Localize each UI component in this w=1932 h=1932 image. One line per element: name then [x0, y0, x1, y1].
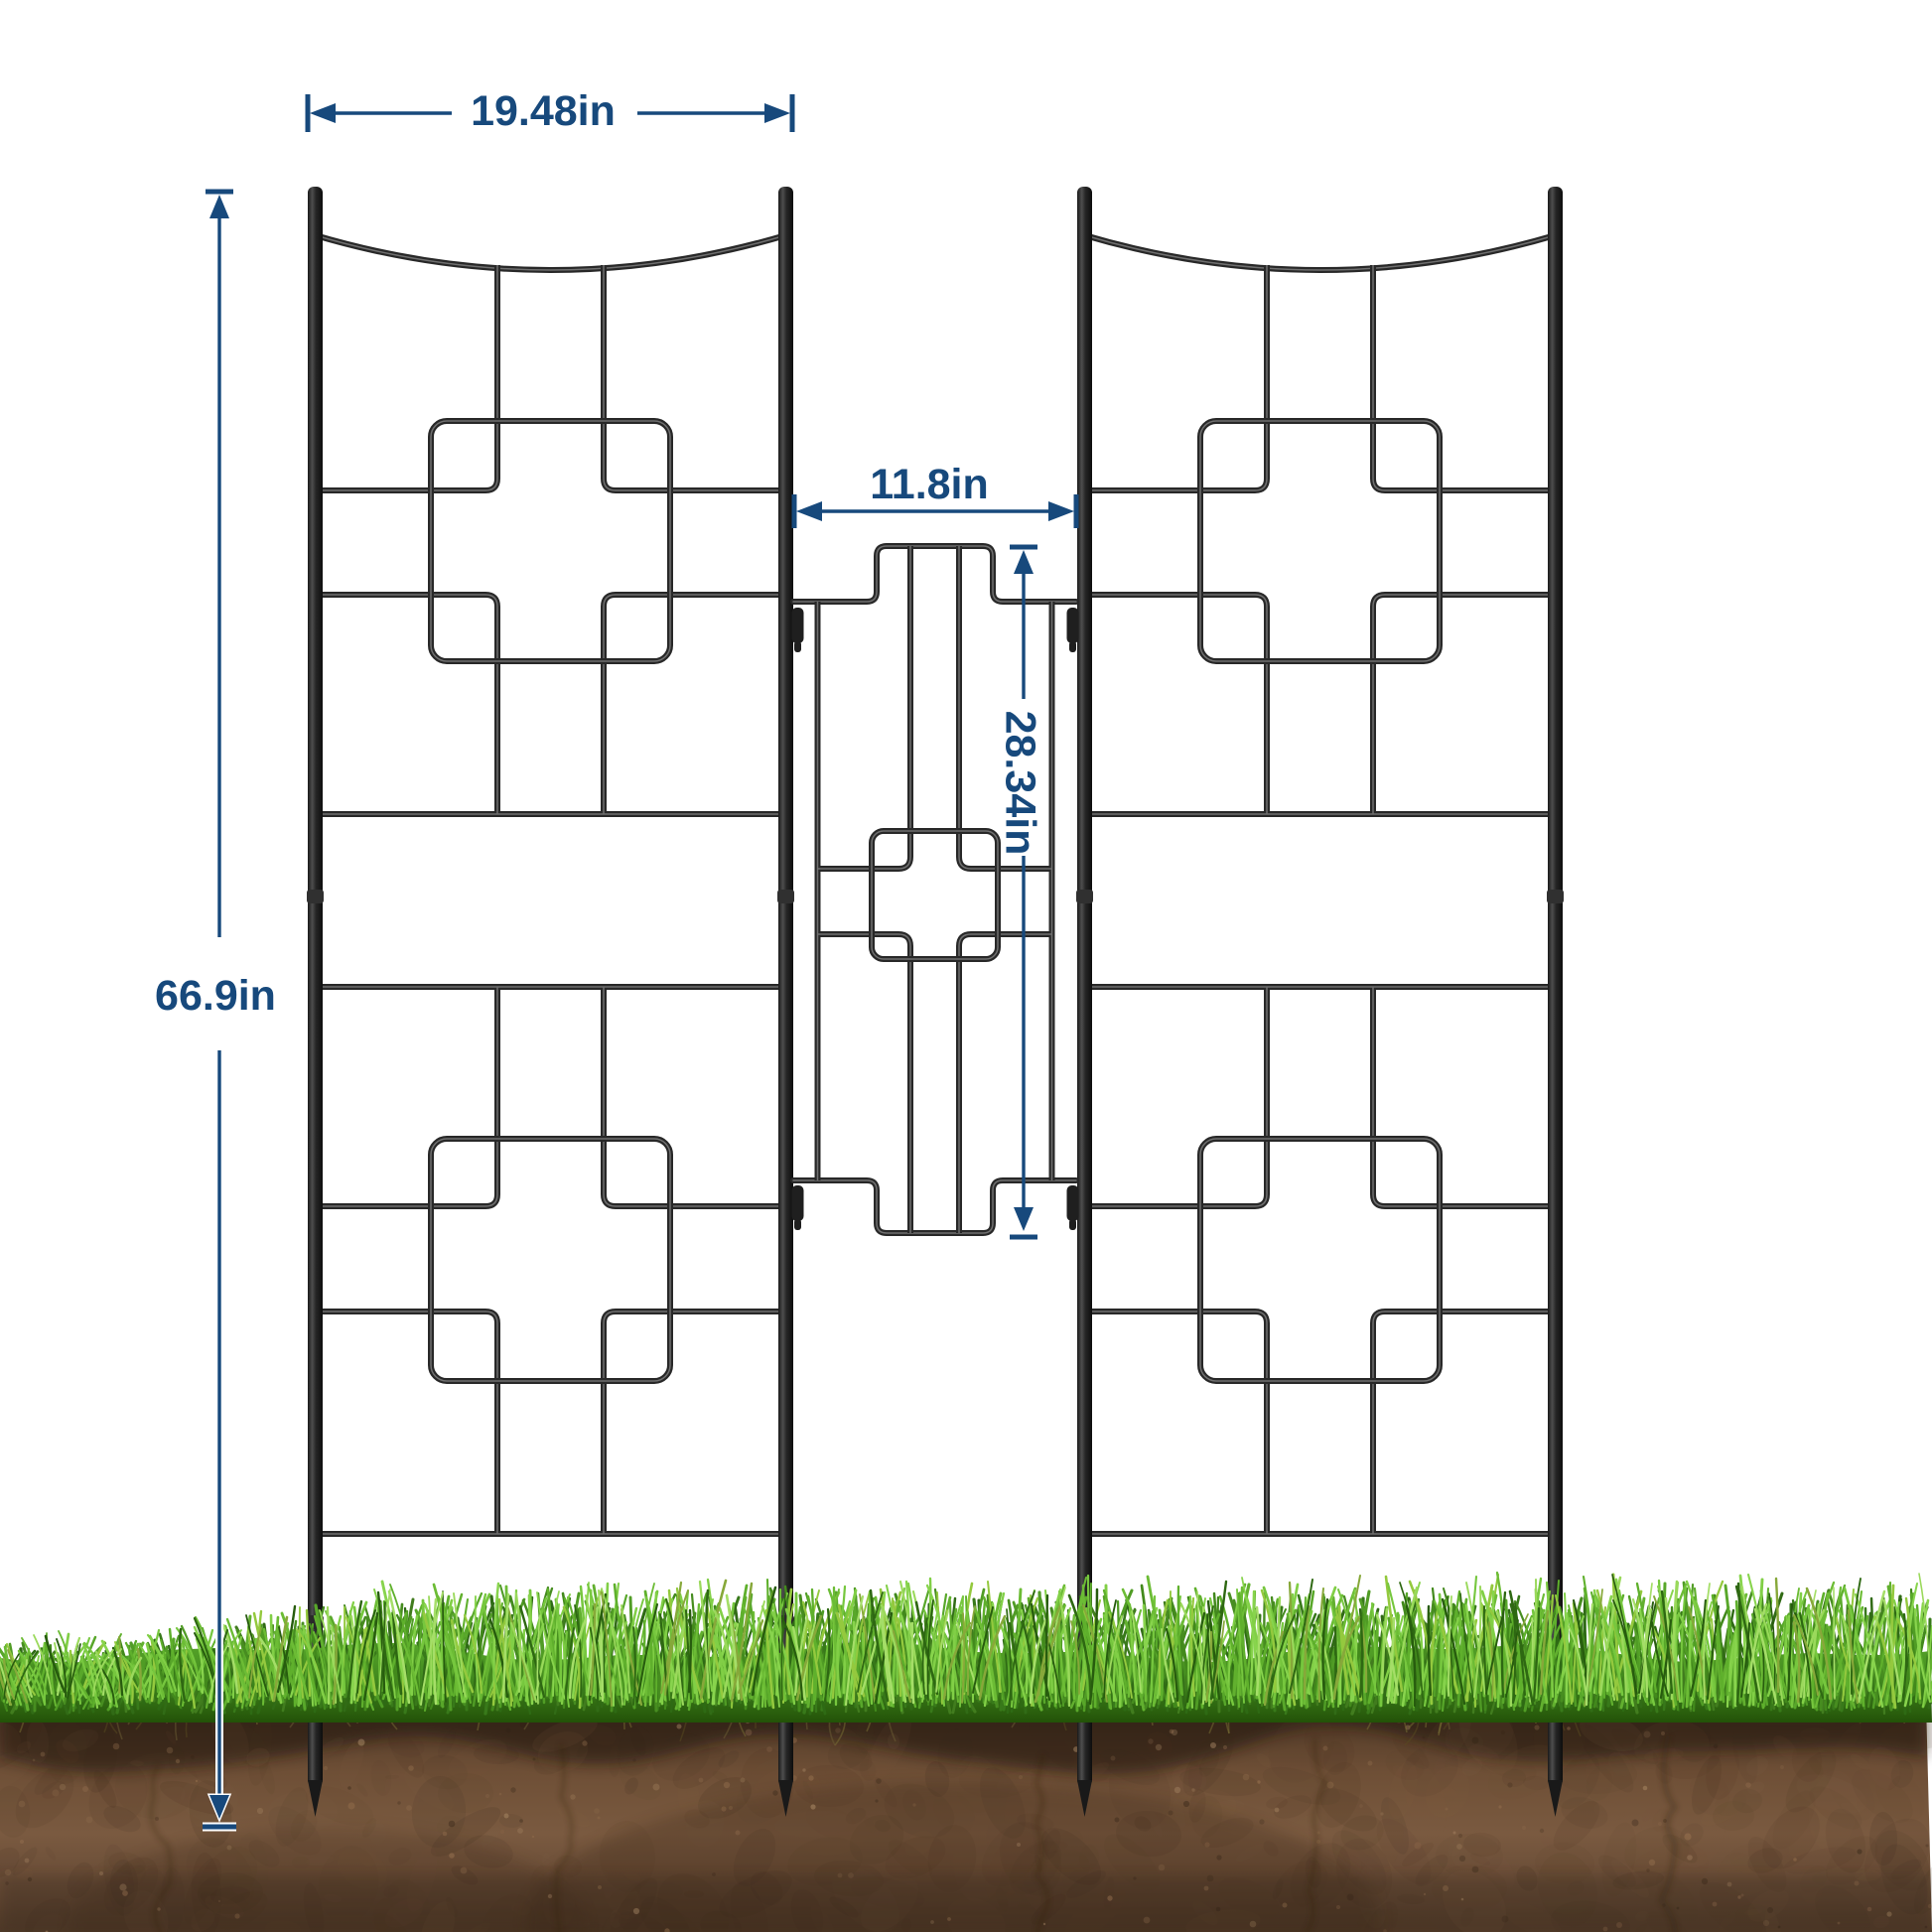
svg-text:66.9in: 66.9in: [155, 972, 276, 1020]
svg-text:28.34in: 28.34in: [997, 711, 1044, 856]
svg-text:19.48in: 19.48in: [471, 87, 616, 135]
svg-text:11.8in: 11.8in: [870, 461, 989, 508]
